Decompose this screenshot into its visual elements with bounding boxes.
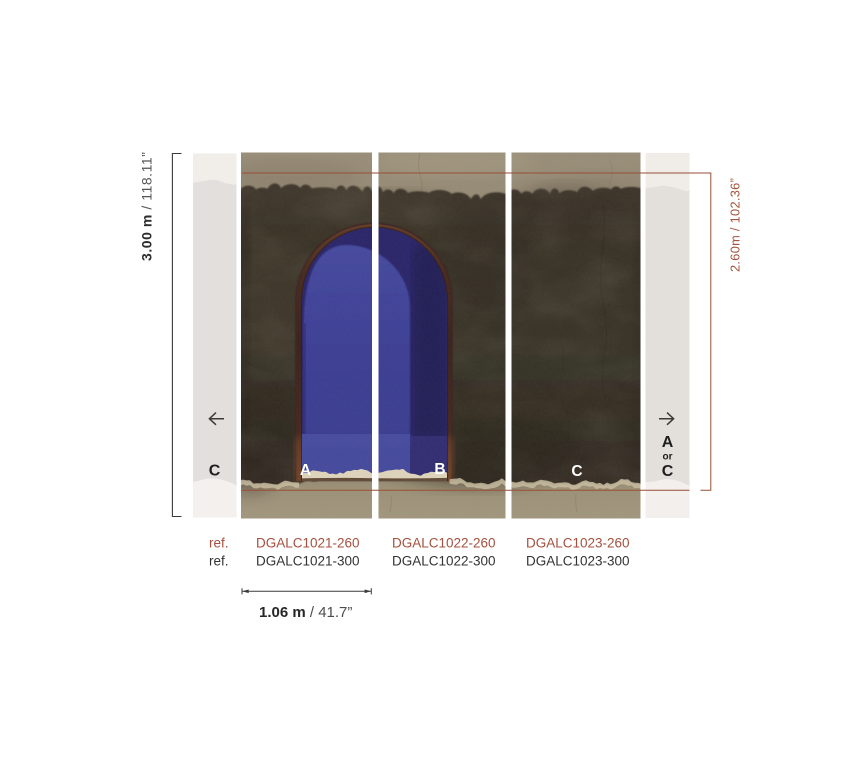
svg-text:DGALC1021-300: DGALC1021-300 — [256, 554, 360, 569]
svg-text:C: C — [662, 463, 674, 480]
svg-text:2.60m / 102.36”: 2.60m / 102.36” — [728, 178, 743, 272]
svg-text:1.06 m / 41.7”: 1.06 m / 41.7” — [259, 604, 352, 621]
svg-text:DGALC1021-260: DGALC1021-260 — [256, 536, 360, 551]
svg-text:3.00 m / 118.11”: 3.00 m / 118.11” — [139, 152, 155, 261]
svg-text:B: B — [434, 461, 445, 478]
svg-text:ref.: ref. — [209, 554, 229, 569]
svg-text:ref.: ref. — [209, 536, 229, 551]
svg-text:DGALC1023-300: DGALC1023-300 — [526, 554, 630, 569]
svg-text:or: or — [663, 452, 673, 463]
svg-text:DGALC1022-260: DGALC1022-260 — [392, 536, 496, 551]
svg-text:A: A — [662, 434, 674, 451]
svg-text:C: C — [209, 463, 221, 480]
svg-text:DGALC1023-260: DGALC1023-260 — [526, 536, 630, 551]
svg-text:C: C — [571, 463, 582, 480]
svg-text:DGALC1022-300: DGALC1022-300 — [392, 554, 496, 569]
svg-text:A: A — [300, 462, 311, 479]
